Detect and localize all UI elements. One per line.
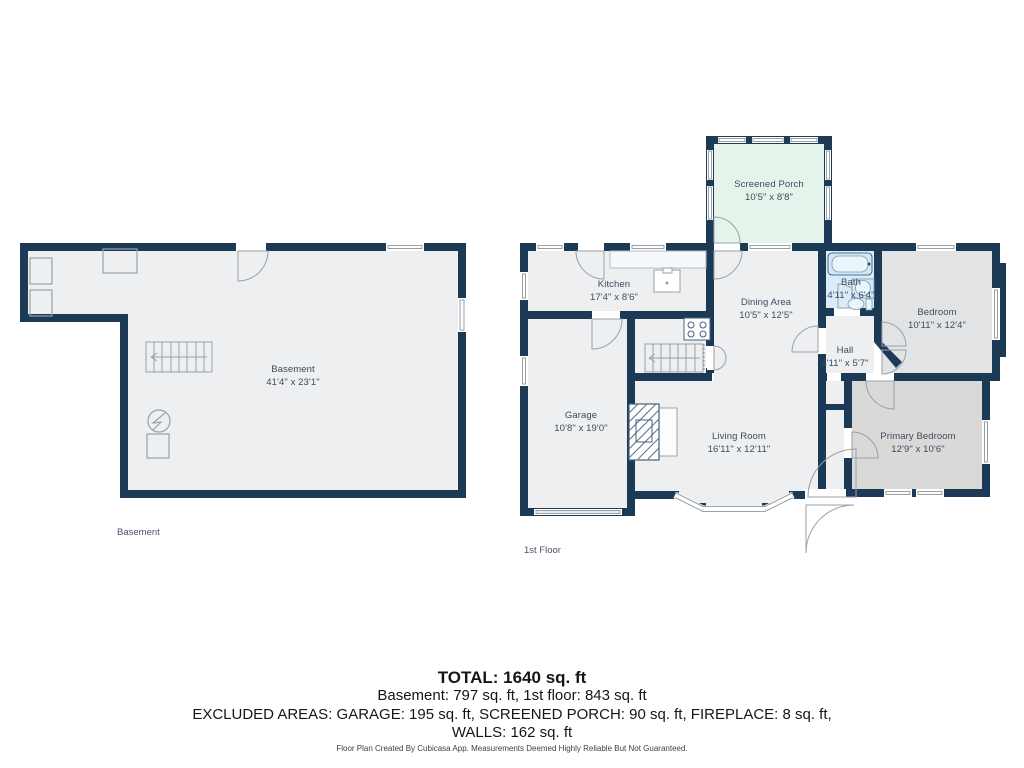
- entry-strip-floor: [826, 381, 844, 491]
- basement-plan: [20, 243, 466, 498]
- faucet-icon: [663, 268, 672, 273]
- room-dims: 4'11" x 5'7": [821, 357, 868, 370]
- room-label-primary-bedroom: Primary Bedroom 12'9" x 10'6": [880, 430, 955, 456]
- floor-plan-page: Basement 41'4" x 23'1" Screened Porch 10…: [0, 0, 1024, 768]
- room-label-bedroom: Bedroom 10'11" x 12'4": [908, 306, 966, 332]
- floor-areas: Basement: 797 sq. ft, 1st floor: 843 sq.…: [0, 687, 1024, 706]
- floor-plan-canvas: [0, 0, 1024, 768]
- tub-faucet-icon: [868, 263, 871, 266]
- room-name: Hall: [821, 344, 868, 357]
- room-name: Dining Area: [739, 296, 792, 309]
- room-dims: 10'8" x 19'0": [554, 422, 607, 435]
- room-label-kitchen: Kitchen 17'4" x 8'6": [590, 278, 638, 304]
- fireplace: [629, 404, 677, 460]
- room-name: Primary Bedroom: [880, 430, 955, 443]
- wall-areas: WALLS: 162 sq. ft: [0, 724, 1024, 743]
- room-label-basement: Basement 41'4" x 23'1": [266, 363, 319, 389]
- total-area: TOTAL: 1640 sq. ft: [0, 668, 1024, 687]
- room-name: Garage: [554, 409, 607, 422]
- room-label-garage: Garage 10'8" x 19'0": [554, 409, 607, 435]
- stove: [684, 318, 710, 340]
- front-door-swing-lower: [806, 505, 854, 553]
- room-label-screened-porch: Screened Porch 10'5" x 8'8": [734, 178, 804, 204]
- basement-door-opening: [236, 243, 266, 251]
- room-dims: 16'11" x 12'11": [708, 443, 771, 456]
- excluded-areas: EXCLUDED AREAS: GARAGE: 195 sq. ft, SCRE…: [0, 706, 1024, 725]
- room-name: Bedroom: [908, 306, 966, 319]
- room-label-hall: Hall 4'11" x 5'7": [821, 344, 868, 370]
- first-floor-caption: 1st Floor: [524, 545, 561, 556]
- room-dims: 41'4" x 23'1": [266, 376, 319, 389]
- room-label-bath: Bath 4'11" x 6'4": [827, 276, 874, 302]
- room-label-living-room: Living Room 16'11" x 12'11": [708, 430, 771, 456]
- room-name: Living Room: [708, 430, 771, 443]
- credit-note: Floor Plan Created By Cubicasa App. Meas…: [0, 744, 1024, 753]
- room-label-dining-area: Dining Area 10'5" x 12'5": [739, 296, 792, 322]
- room-dims: 10'5" x 8'8": [734, 191, 804, 204]
- basement-caption: Basement: [117, 527, 160, 538]
- room-dims: 10'5" x 12'5": [739, 309, 792, 322]
- basement-floor: [28, 251, 458, 490]
- room-dims: 17'4" x 8'6": [590, 291, 638, 304]
- room-dims: 10'11" x 12'4": [908, 319, 966, 332]
- room-name: Basement: [266, 363, 319, 376]
- room-name: Bath: [827, 276, 874, 289]
- room-name: Kitchen: [590, 278, 638, 291]
- room-name: Screened Porch: [734, 178, 804, 191]
- room-dims: 4'11" x 6'4": [827, 289, 874, 302]
- area-summary: TOTAL: 1640 sq. ft Basement: 797 sq. ft,…: [0, 668, 1024, 743]
- room-dims: 12'9" x 10'6": [880, 443, 955, 456]
